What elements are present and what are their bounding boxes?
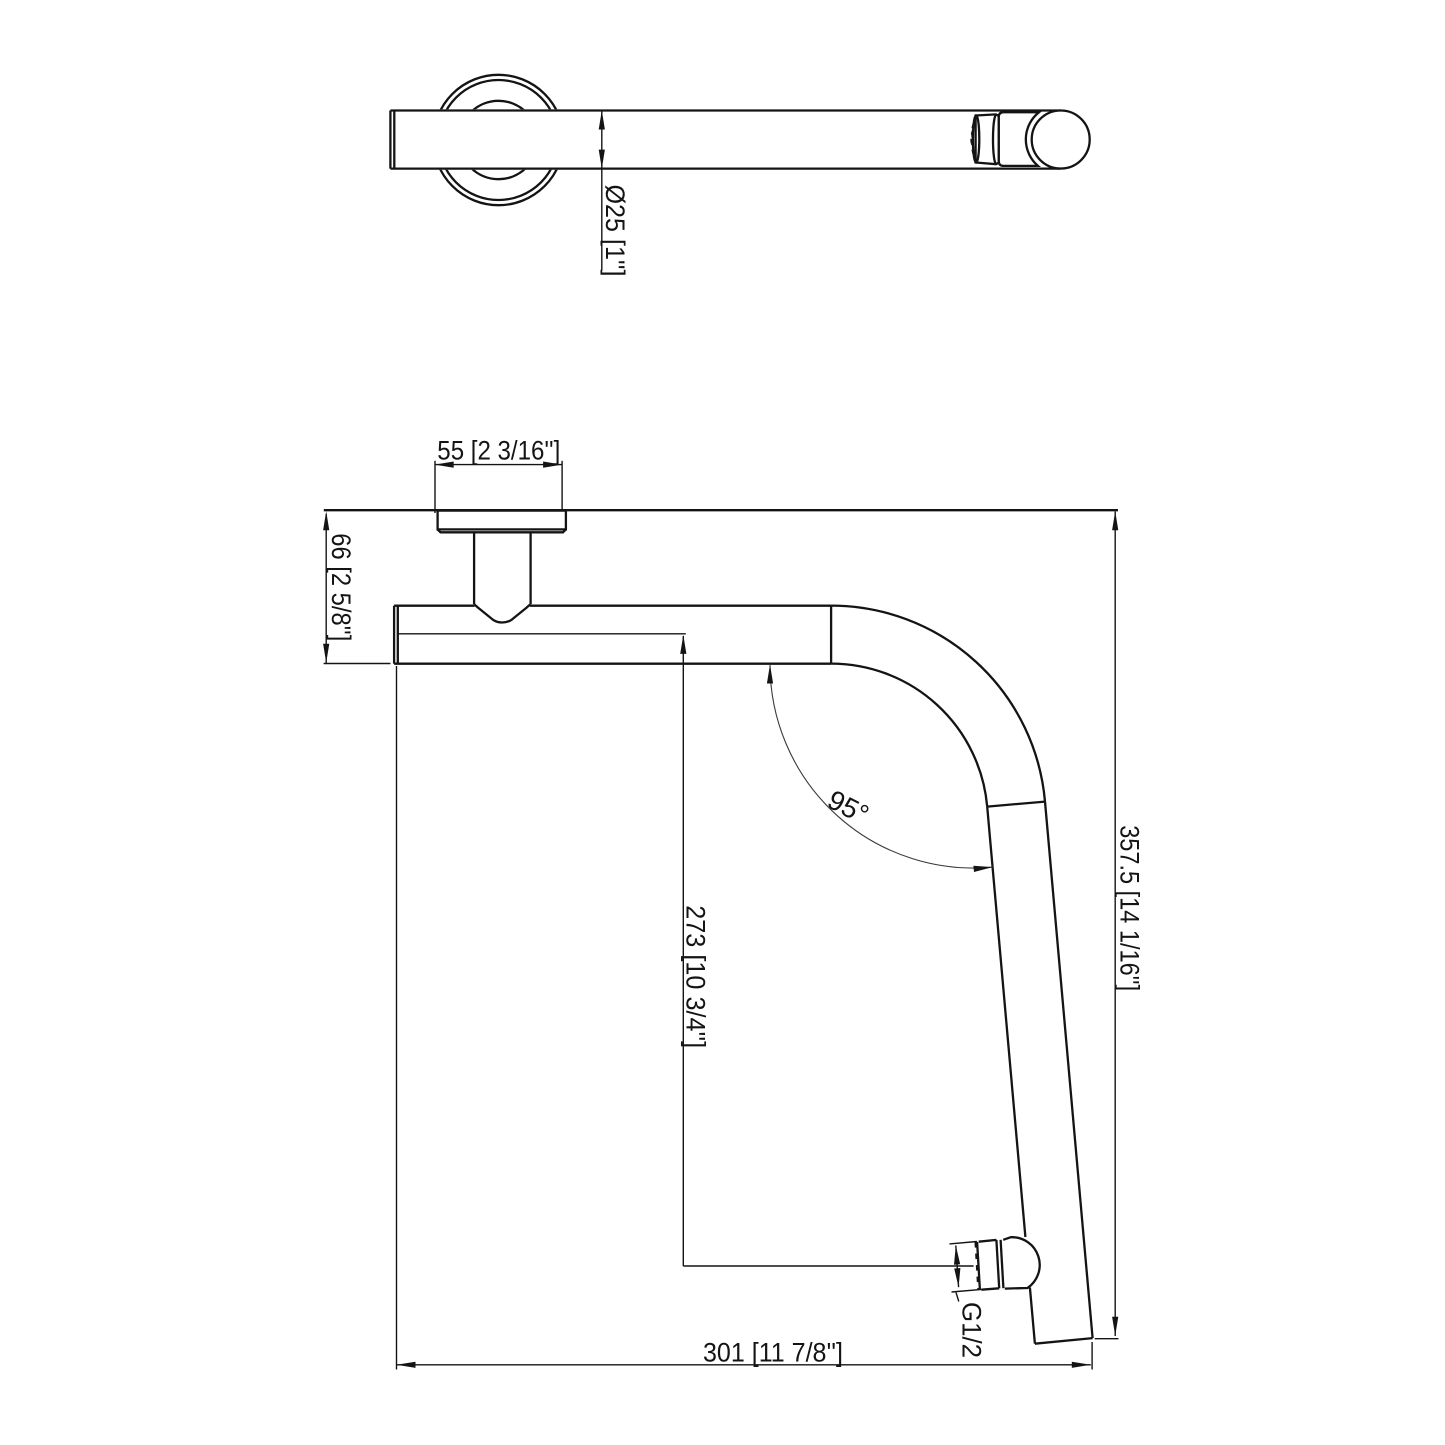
svg-text:55 [2 3/16'']: 55 [2 3/16''] bbox=[437, 436, 560, 466]
svg-text:G1/2: G1/2 bbox=[957, 1302, 987, 1358]
svg-text:357.5 [14 1/16'']: 357.5 [14 1/16''] bbox=[1114, 825, 1144, 991]
svg-text:273 [10 3/4'']: 273 [10 3/4''] bbox=[680, 905, 710, 1048]
svg-text:301 [11 7/8'']: 301 [11 7/8''] bbox=[703, 1338, 843, 1368]
svg-text:Ø25 [1'']: Ø25 [1''] bbox=[600, 185, 630, 277]
svg-text:66 [2 5/8'']: 66 [2 5/8''] bbox=[326, 533, 356, 641]
